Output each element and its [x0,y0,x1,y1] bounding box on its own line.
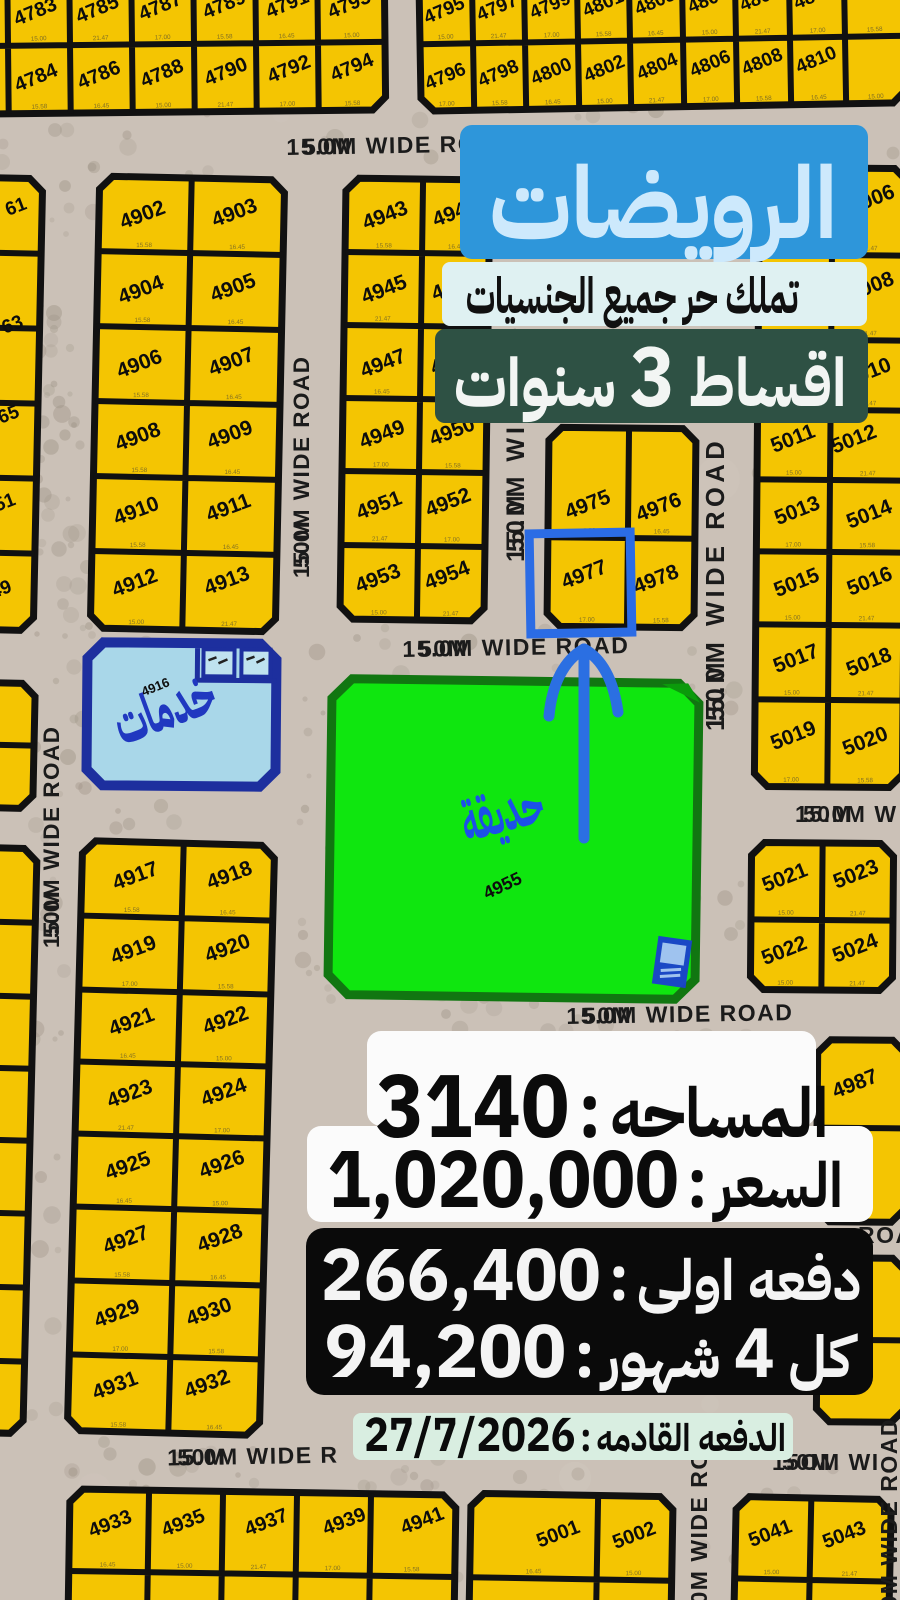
svg-text:17.00: 17.00 [279,101,296,109]
svg-text:17.00: 17.00 [810,27,827,35]
svg-text:15.58: 15.58 [376,242,392,249]
svg-text:15.58: 15.58 [110,1422,126,1429]
svg-text:15.58: 15.58 [130,542,146,549]
svg-text:17.00: 17.00 [155,34,172,42]
svg-text:15.00: 15.00 [371,609,387,616]
svg-text:15.58: 15.58 [131,467,147,474]
svg-text:15.00: 15.00 [786,469,802,476]
svg-text:15.00: 15.00 [344,32,361,40]
svg-text:21.47: 21.47 [491,32,508,40]
svg-text:17.00: 17.00 [325,1565,341,1572]
svg-text:15.58: 15.58 [208,1348,224,1355]
svg-text:15.00: 15.00 [626,1570,642,1577]
svg-text:15.00: 15.00 [764,1569,780,1576]
svg-text:16.45: 16.45 [120,1053,136,1060]
svg-text:15.00: 15.00 [177,1563,193,1570]
svg-text:16.45: 16.45 [811,94,828,102]
svg-text:15.58: 15.58 [867,26,884,34]
svg-text:21.47: 21.47 [755,28,772,36]
svg-text:15.58: 15.58 [492,99,509,107]
svg-text:17.00: 17.00 [783,776,799,783]
svg-text:15.00: 15.00 [777,979,793,986]
svg-text:17.00: 17.00 [122,981,138,988]
svg-text:15.58: 15.58 [596,31,613,39]
svg-text:15.00: 15.00 [128,619,144,626]
svg-text:21.47: 21.47 [251,1564,267,1571]
svg-text:16.45: 16.45 [545,98,562,106]
svg-text:16.45: 16.45 [220,909,236,916]
svg-text:50M: 50M [583,1002,633,1029]
svg-text:16.45: 16.45 [229,244,245,251]
svg-text:21.47: 21.47 [443,610,459,617]
svg-text:17.00: 17.00 [439,100,456,108]
svg-text:21.47: 21.47 [859,615,875,622]
svg-text:50M: 50M [39,890,64,938]
svg-text:16.45: 16.45 [93,102,110,110]
svg-text:15.00: 15.00 [155,102,172,110]
svg-text:21.47: 21.47 [842,1571,858,1578]
svg-text:50M: 50M [803,801,852,827]
svg-text:21.47: 21.47 [221,621,237,628]
svg-text:15.58: 15.58 [217,33,234,41]
svg-text:21.47: 21.47 [118,1125,134,1132]
svg-text:20.0M WIDE ROAD: 20.0M WIDE ROAD [876,1418,900,1600]
svg-text:15.00: 15.00 [784,689,800,696]
svg-text:15.58: 15.58 [756,95,773,103]
svg-text:16.45: 16.45 [224,469,240,476]
svg-text:15.58: 15.58 [859,542,875,549]
svg-text:16.45: 16.45 [116,1198,132,1205]
svg-text:15.58: 15.58 [857,777,873,784]
svg-text:50M: 50M [177,1443,227,1470]
svg-text:15.00: 15.00 [702,29,719,37]
svg-text:17.00: 17.00 [544,31,561,39]
svg-text:17.00: 17.00 [444,536,460,543]
svg-text:21.47: 21.47 [849,980,865,987]
svg-text:17.00: 17.00 [112,1346,128,1353]
svg-text:21.47: 21.47 [858,690,874,697]
svg-text:15.00: 15.00 [438,33,455,41]
svg-text:15.58: 15.58 [136,242,152,249]
svg-text:17.00: 17.00 [373,461,389,468]
svg-text:15.00: 15.00 [868,93,885,101]
svg-text:16.45: 16.45 [279,33,296,41]
svg-text:15.58: 15.58 [31,103,48,111]
svg-text:21.47: 21.47 [217,101,234,109]
svg-text:15.00: 15.00 [212,1200,228,1207]
svg-text:50M: 50M [303,133,353,160]
svg-text:15.58: 15.58 [404,1566,420,1573]
svg-text:17.00: 17.00 [703,96,720,104]
svg-text:15.00: 15.00 [216,1055,232,1062]
svg-text:16.45: 16.45 [374,388,390,395]
svg-text:16.45: 16.45 [654,528,670,535]
svg-text:16.45: 16.45 [648,30,665,38]
svg-text:21.47: 21.47 [375,315,391,322]
svg-text:15.58: 15.58 [344,100,361,108]
svg-text:15.00: 15.00 [597,98,614,106]
svg-text:16.45: 16.45 [526,1568,542,1575]
svg-text:15.58: 15.58 [653,617,669,624]
svg-text:15.58: 15.58 [445,462,461,469]
svg-text:15.58: 15.58 [135,317,151,324]
svg-text:21.47: 21.47 [860,470,876,477]
svg-text:16.45: 16.45 [210,1274,226,1281]
svg-text:21.47: 21.47 [93,34,110,42]
svg-text:15.58: 15.58 [114,1272,130,1279]
svg-text:16.45: 16.45 [228,319,244,326]
svg-text:21.47: 21.47 [372,535,388,542]
svg-text:16.45: 16.45 [226,394,242,401]
svg-text:15.58: 15.58 [218,983,234,990]
svg-text:50M: 50M [419,635,469,662]
svg-text:16.45: 16.45 [223,544,239,551]
svg-text:21.47: 21.47 [850,910,866,917]
svg-text:15.58: 15.58 [124,907,140,914]
svg-text:15.58: 15.58 [133,392,149,399]
svg-text:15.00: 15.00 [785,614,801,621]
svg-text:17.00: 17.00 [214,1127,230,1134]
svg-text:16.45: 16.45 [100,1561,116,1568]
svg-text:21.47: 21.47 [649,97,666,105]
svg-text:15.00: 15.00 [778,909,794,916]
svg-text:50M: 50M [289,520,314,568]
svg-text:15.00: 15.00 [31,35,48,43]
svg-text:16.45: 16.45 [206,1424,222,1431]
svg-text:17.00: 17.00 [785,541,801,548]
svg-text:17.00: 17.00 [579,616,595,623]
svg-text:50M: 50M [702,658,730,721]
